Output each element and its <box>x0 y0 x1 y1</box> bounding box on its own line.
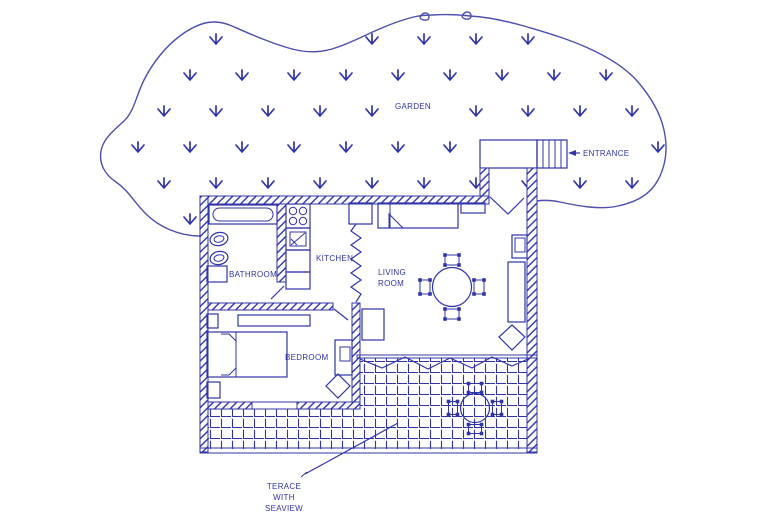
living-room: LIVING ROOM <box>362 203 527 350</box>
wall-bedroom-bottom-right <box>297 402 360 409</box>
bedroom-window <box>252 402 297 409</box>
fridge-icon <box>349 203 372 224</box>
living-room-label-line1: LIVING <box>378 268 406 277</box>
grass-icon <box>236 142 248 152</box>
counter-icon <box>286 272 310 289</box>
grass-icon <box>262 106 274 116</box>
bedroom-door-swing <box>334 309 348 320</box>
grass-icon <box>366 106 378 116</box>
grass-icon <box>288 70 300 80</box>
shower-icon <box>207 266 227 282</box>
entrance-door-swing <box>490 197 524 214</box>
living-room-label-line2: ROOM <box>378 279 404 288</box>
grass-icon <box>210 106 222 116</box>
terrace <box>208 357 528 449</box>
grass-icon <box>236 70 248 80</box>
terrace-label-line1: TERACE <box>267 482 301 491</box>
wall-mid-horizontal <box>208 303 333 310</box>
terrace-tiles-left <box>208 409 360 449</box>
entrance-label: ENTRANCE <box>583 149 629 158</box>
plant-diamond-icon <box>499 325 525 350</box>
grass-icon <box>522 106 534 116</box>
bathroom-door-swing <box>271 286 284 299</box>
dining-chairs <box>418 253 486 321</box>
sink-icon <box>209 231 229 247</box>
bathtub-icon <box>209 205 277 224</box>
grass-icon <box>392 142 404 152</box>
grass-icon <box>158 106 170 116</box>
wall-right <box>527 168 537 452</box>
wardrobe-icon <box>335 340 352 375</box>
grass-icon <box>444 70 456 80</box>
grass-icon <box>184 70 196 80</box>
kitchen-sink-icon <box>286 228 310 250</box>
kitchen: KITCHEN <box>286 203 372 289</box>
plant-diamond-icon <box>326 374 350 398</box>
grass-icon <box>626 106 638 116</box>
grass-icon <box>652 142 664 152</box>
grass-icon <box>548 70 560 80</box>
grass-icon <box>262 178 274 188</box>
grass-icon <box>314 106 326 116</box>
entrance-porch <box>480 140 537 168</box>
bidet-icon <box>209 250 229 266</box>
chair-icon <box>443 307 461 321</box>
garden-label: GARDEN <box>395 102 431 111</box>
floor-plan-canvas: GARDEN ENTRANCE <box>0 0 768 512</box>
chair-icon <box>472 278 486 296</box>
bathroom: BATHROOM <box>207 205 277 282</box>
grass-icon <box>288 142 300 152</box>
grass-icon <box>600 70 612 80</box>
grass-icon <box>158 178 170 188</box>
grass-icon <box>184 214 196 224</box>
grass-icon <box>184 142 196 152</box>
grass-icon <box>132 142 144 152</box>
grass-icon <box>496 70 508 80</box>
grass-icon <box>626 178 638 188</box>
grass-icon <box>366 178 378 188</box>
terrace-label-line3: SEAVIEW <box>265 504 303 512</box>
chair-icon <box>418 278 432 296</box>
leader-tick <box>301 472 307 477</box>
bed-icon <box>207 332 287 377</box>
chair-icon <box>443 253 461 267</box>
grass-icon <box>470 34 482 44</box>
dresser-icon <box>238 315 310 326</box>
stove-icon <box>286 204 310 228</box>
entrance-arrow-icon <box>568 150 580 156</box>
grass-icon <box>366 34 378 44</box>
grass-icon <box>392 70 404 80</box>
garden-curl-icon <box>420 13 429 20</box>
wall-bedroom-right <box>352 303 360 405</box>
kitchen-label: KITCHEN <box>316 254 353 263</box>
grass-icon <box>522 34 534 44</box>
wall-bedroom-bottom-left <box>208 402 252 409</box>
grass-icon <box>418 178 430 188</box>
grass-icon <box>418 34 430 44</box>
terrace-label-line2: WITH <box>273 493 295 502</box>
grass-icon <box>340 142 352 152</box>
nightstand-icon <box>207 382 220 398</box>
grass-icon <box>210 178 222 188</box>
grass-icon <box>470 106 482 116</box>
bedroom: BEDROOM <box>207 314 352 398</box>
tv-shelf-icon <box>512 235 527 258</box>
sideboard-icon <box>508 262 525 322</box>
grass-icon <box>314 178 326 188</box>
dining-table-icon <box>433 268 472 307</box>
wall-entrance-stub <box>480 168 489 196</box>
living-terrace-edge <box>357 355 537 358</box>
entrance: ENTRANCE <box>480 140 629 214</box>
grass-icon <box>340 70 352 80</box>
bathroom-label: BATHROOM <box>229 270 277 279</box>
cabinet-icon <box>362 309 384 340</box>
kitchen-living-partition-zigzag <box>351 224 361 302</box>
floor-plan-drawing: GARDEN ENTRANCE <box>0 0 768 512</box>
sofa-icon <box>378 203 458 228</box>
grass-icon <box>444 142 456 152</box>
grass-icon <box>574 178 586 188</box>
bedroom-label: BEDROOM <box>285 353 328 362</box>
nightstand-icon <box>207 314 218 328</box>
wall-bathroom-kitchen <box>277 204 286 282</box>
grass-icon <box>210 34 222 44</box>
grass-icon <box>574 106 586 116</box>
counter-icon <box>286 250 310 272</box>
entrance-stairs-icon <box>537 140 567 168</box>
